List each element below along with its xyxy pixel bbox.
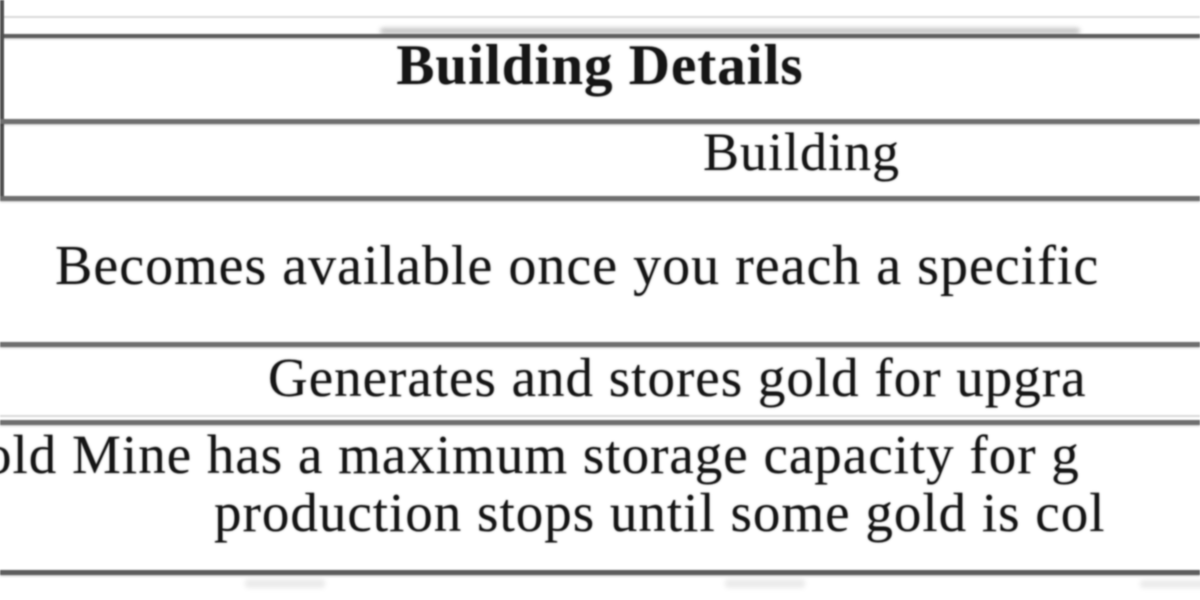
storage-description-line2: production stops until some gold is col bbox=[214, 485, 1105, 540]
horizontal-divider-faint-top bbox=[0, 16, 1200, 18]
text-ghost-bottom-1 bbox=[245, 579, 325, 588]
table-content-layer: Building Details Building Becomes availa… bbox=[0, 0, 1200, 600]
table-header-title: Building Details bbox=[0, 37, 1200, 94]
storage-description-line1: old Mine has a maximum storage capacity … bbox=[0, 427, 1080, 482]
details-table: Building Details Building Becomes availa… bbox=[0, 0, 1200, 600]
text-ghost-bottom-3 bbox=[1140, 580, 1200, 588]
text-ghost-bottom-2 bbox=[725, 579, 805, 588]
horizontal-divider-6 bbox=[0, 570, 1200, 575]
left-table-border bbox=[0, 0, 4, 201]
horizontal-divider-2 bbox=[0, 119, 1200, 124]
function-description: Generates and stores gold for upgra bbox=[268, 350, 1086, 405]
building-column-header: Building bbox=[703, 125, 900, 179]
availability-description: Becomes available once you reach a speci… bbox=[55, 238, 1099, 294]
horizontal-divider-faint-mid bbox=[0, 415, 1200, 417]
horizontal-divider-3 bbox=[0, 196, 1200, 201]
